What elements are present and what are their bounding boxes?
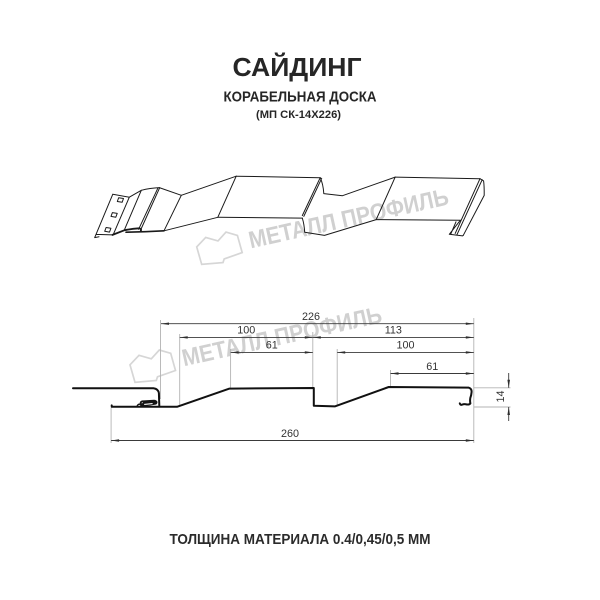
svg-text:14: 14 [495, 390, 507, 402]
svg-text:КОРАБЕЛЬНАЯ ДОСКА: КОРАБЕЛЬНАЯ ДОСКА [224, 88, 377, 105]
svg-text:113: 113 [385, 325, 402, 337]
svg-text:226: 226 [302, 311, 320, 323]
svg-text:61: 61 [266, 340, 278, 352]
svg-text:САЙДИНГ: САЙДИНГ [233, 52, 362, 82]
svg-text:260: 260 [281, 428, 299, 440]
svg-text:ТОЛЩИНА МАТЕРИАЛА 0.4/0,45/0,5: ТОЛЩИНА МАТЕРИАЛА 0.4/0,45/0,5 ММ [170, 531, 431, 548]
svg-text:100: 100 [237, 325, 255, 337]
svg-text:61: 61 [426, 361, 438, 373]
svg-text:100: 100 [396, 340, 414, 352]
svg-text:(МП СК-14Х226): (МП СК-14Х226) [256, 109, 341, 121]
